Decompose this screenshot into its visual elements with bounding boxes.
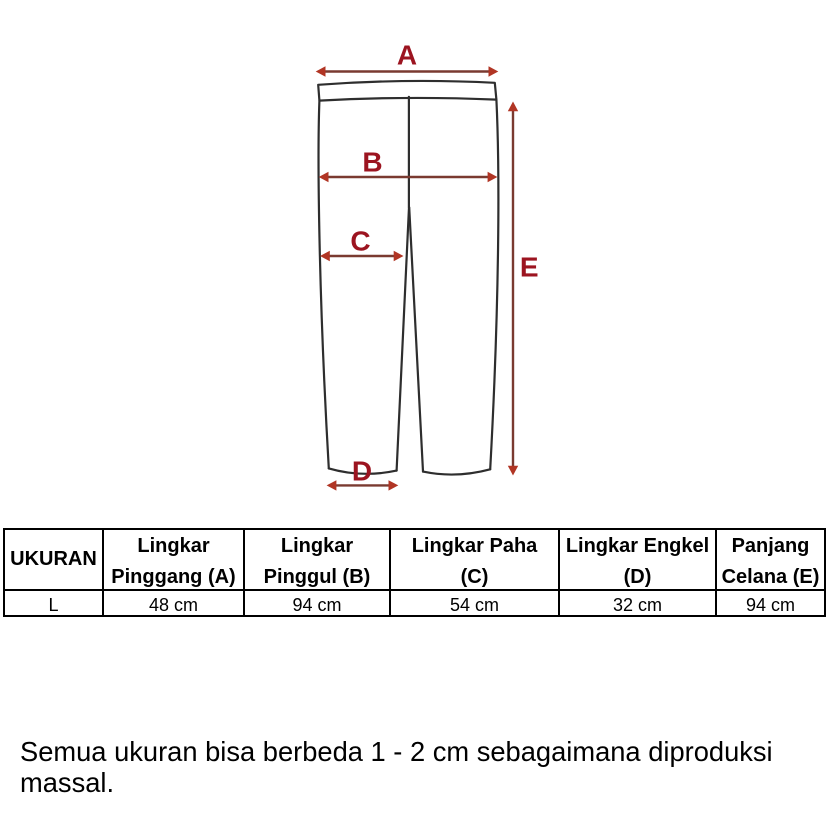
svg-text:E: E	[520, 252, 539, 283]
svg-text:D: D	[352, 456, 372, 487]
svg-text:B: B	[362, 147, 382, 178]
svg-text:C: C	[350, 226, 370, 257]
svg-text:A: A	[397, 40, 417, 71]
